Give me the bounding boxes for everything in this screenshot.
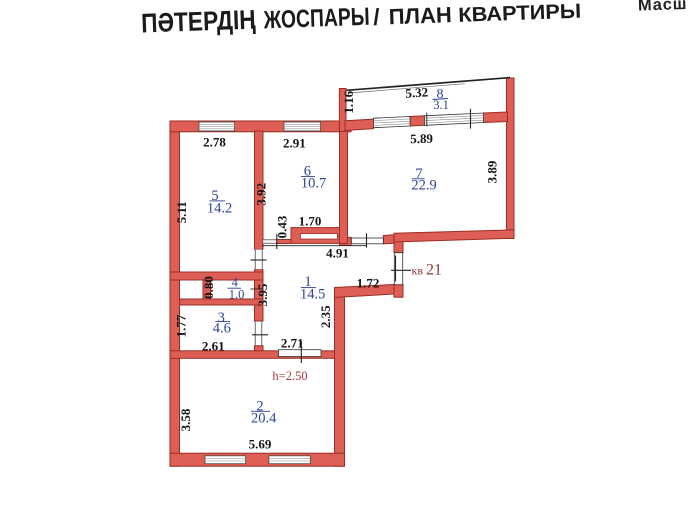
svg-text:5.32: 5.32 <box>405 84 429 100</box>
svg-text:h=2.50: h=2.50 <box>272 369 307 383</box>
svg-text:3.92: 3.92 <box>254 183 269 206</box>
svg-text:5.89: 5.89 <box>410 131 434 147</box>
svg-text:5.11: 5.11 <box>174 201 189 223</box>
svg-text:0.80: 0.80 <box>201 276 216 299</box>
svg-text:14.5: 14.5 <box>300 287 325 303</box>
svg-text:2.71: 2.71 <box>281 336 304 351</box>
svg-text:1.70: 1.70 <box>299 214 322 229</box>
svg-text:ПӘТЕРДІҢ: ПӘТЕРДІҢ <box>141 5 257 39</box>
svg-text:1.16: 1.16 <box>341 90 356 113</box>
svg-text:ПЛАН: ПЛАН <box>388 2 452 29</box>
svg-text:1.77: 1.77 <box>173 314 188 337</box>
svg-text:3.89: 3.89 <box>485 160 500 183</box>
svg-text:14.2: 14.2 <box>207 201 232 217</box>
svg-text:3.95: 3.95 <box>255 283 270 306</box>
svg-text:2.91: 2.91 <box>283 136 306 151</box>
svg-text:1.72: 1.72 <box>357 276 380 291</box>
svg-text:кв 21: кв 21 <box>412 261 443 278</box>
svg-text:1.0: 1.0 <box>229 288 245 302</box>
svg-text:2.78: 2.78 <box>203 135 226 150</box>
svg-text:ЖОСПАРЫ: ЖОСПАРЫ <box>262 3 370 35</box>
svg-text:20.4: 20.4 <box>251 411 277 427</box>
svg-text:22.9: 22.9 <box>411 178 436 194</box>
svg-text:Масш: Масш <box>638 0 688 15</box>
svg-text:2.35: 2.35 <box>318 305 333 328</box>
svg-text:3.1: 3.1 <box>433 98 449 112</box>
svg-text:2.61: 2.61 <box>202 339 225 354</box>
svg-text:4.6: 4.6 <box>213 321 231 337</box>
svg-text:0.43: 0.43 <box>274 215 289 238</box>
svg-text:4.91: 4.91 <box>326 246 349 261</box>
svg-text:КВАРТИРЫ: КВАРТИРЫ <box>458 0 582 27</box>
svg-text:5.69: 5.69 <box>249 437 272 452</box>
svg-text:10.7: 10.7 <box>301 176 326 192</box>
svg-text:3.58: 3.58 <box>178 408 193 431</box>
